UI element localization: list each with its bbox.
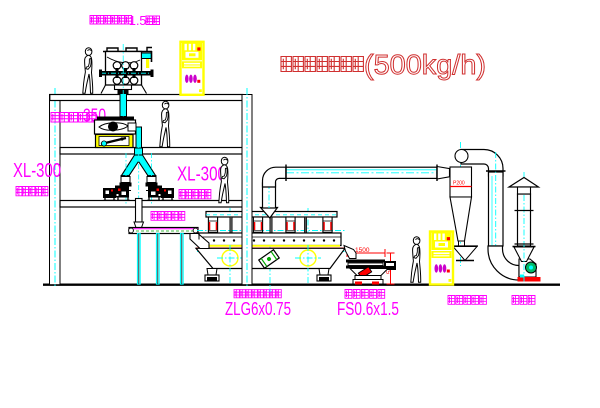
svg-text:XL-300: XL-300 — [177, 164, 226, 186]
svg-text:XL-300: XL-300 — [13, 160, 61, 182]
svg-text:FS0.6x1.5: FS0.6x1.5 — [337, 299, 399, 319]
svg-text:1500: 1500 — [355, 247, 370, 254]
svg-text:(500kg/h): (500kg/h) — [364, 49, 486, 80]
svg-text:ZLG6x0.75: ZLG6x0.75 — [225, 299, 291, 319]
svg-text:1.5: 1.5 — [129, 14, 146, 28]
svg-text:P200: P200 — [453, 181, 465, 187]
